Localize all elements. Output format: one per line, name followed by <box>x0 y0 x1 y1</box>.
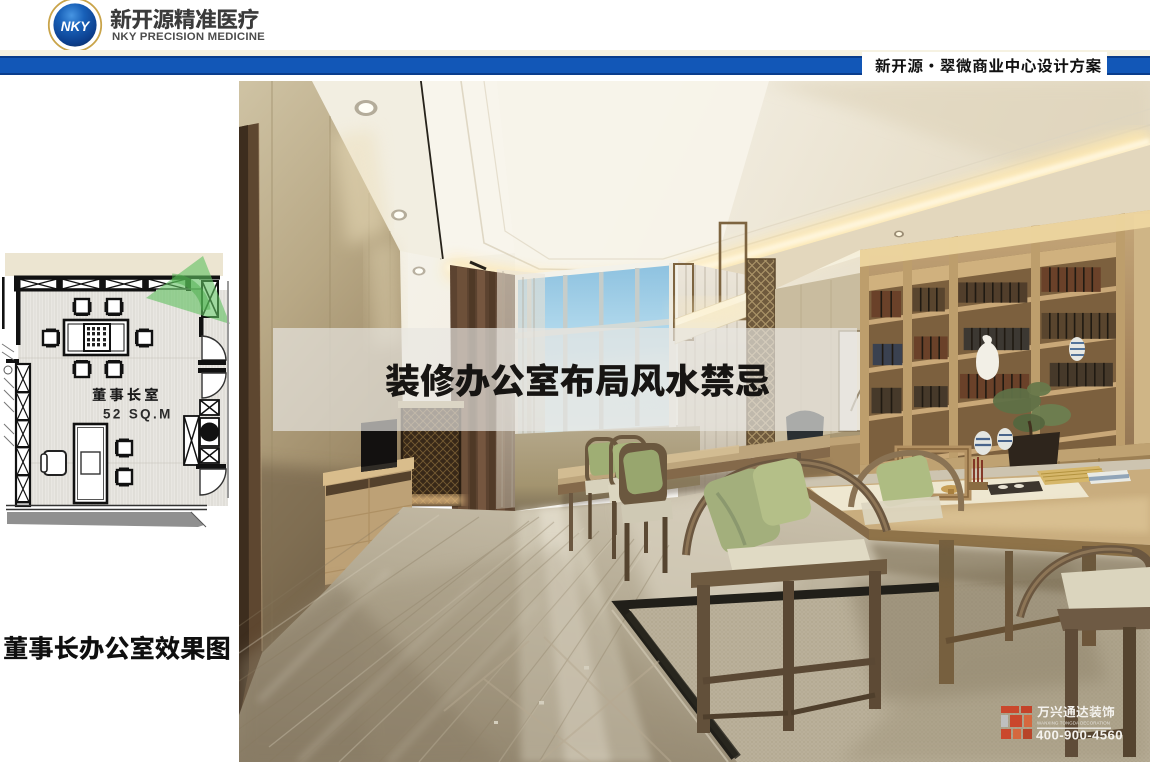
svg-text:400-900-4560: 400-900-4560 <box>1036 728 1123 743</box>
svg-text:52 SQ.M: 52 SQ.M <box>103 407 173 422</box>
svg-text:WANXING TONGDA DECORATION: WANXING TONGDA DECORATION <box>1037 721 1110 726</box>
svg-text:NKY PRECISION MEDICINE: NKY PRECISION MEDICINE <box>112 31 265 43</box>
